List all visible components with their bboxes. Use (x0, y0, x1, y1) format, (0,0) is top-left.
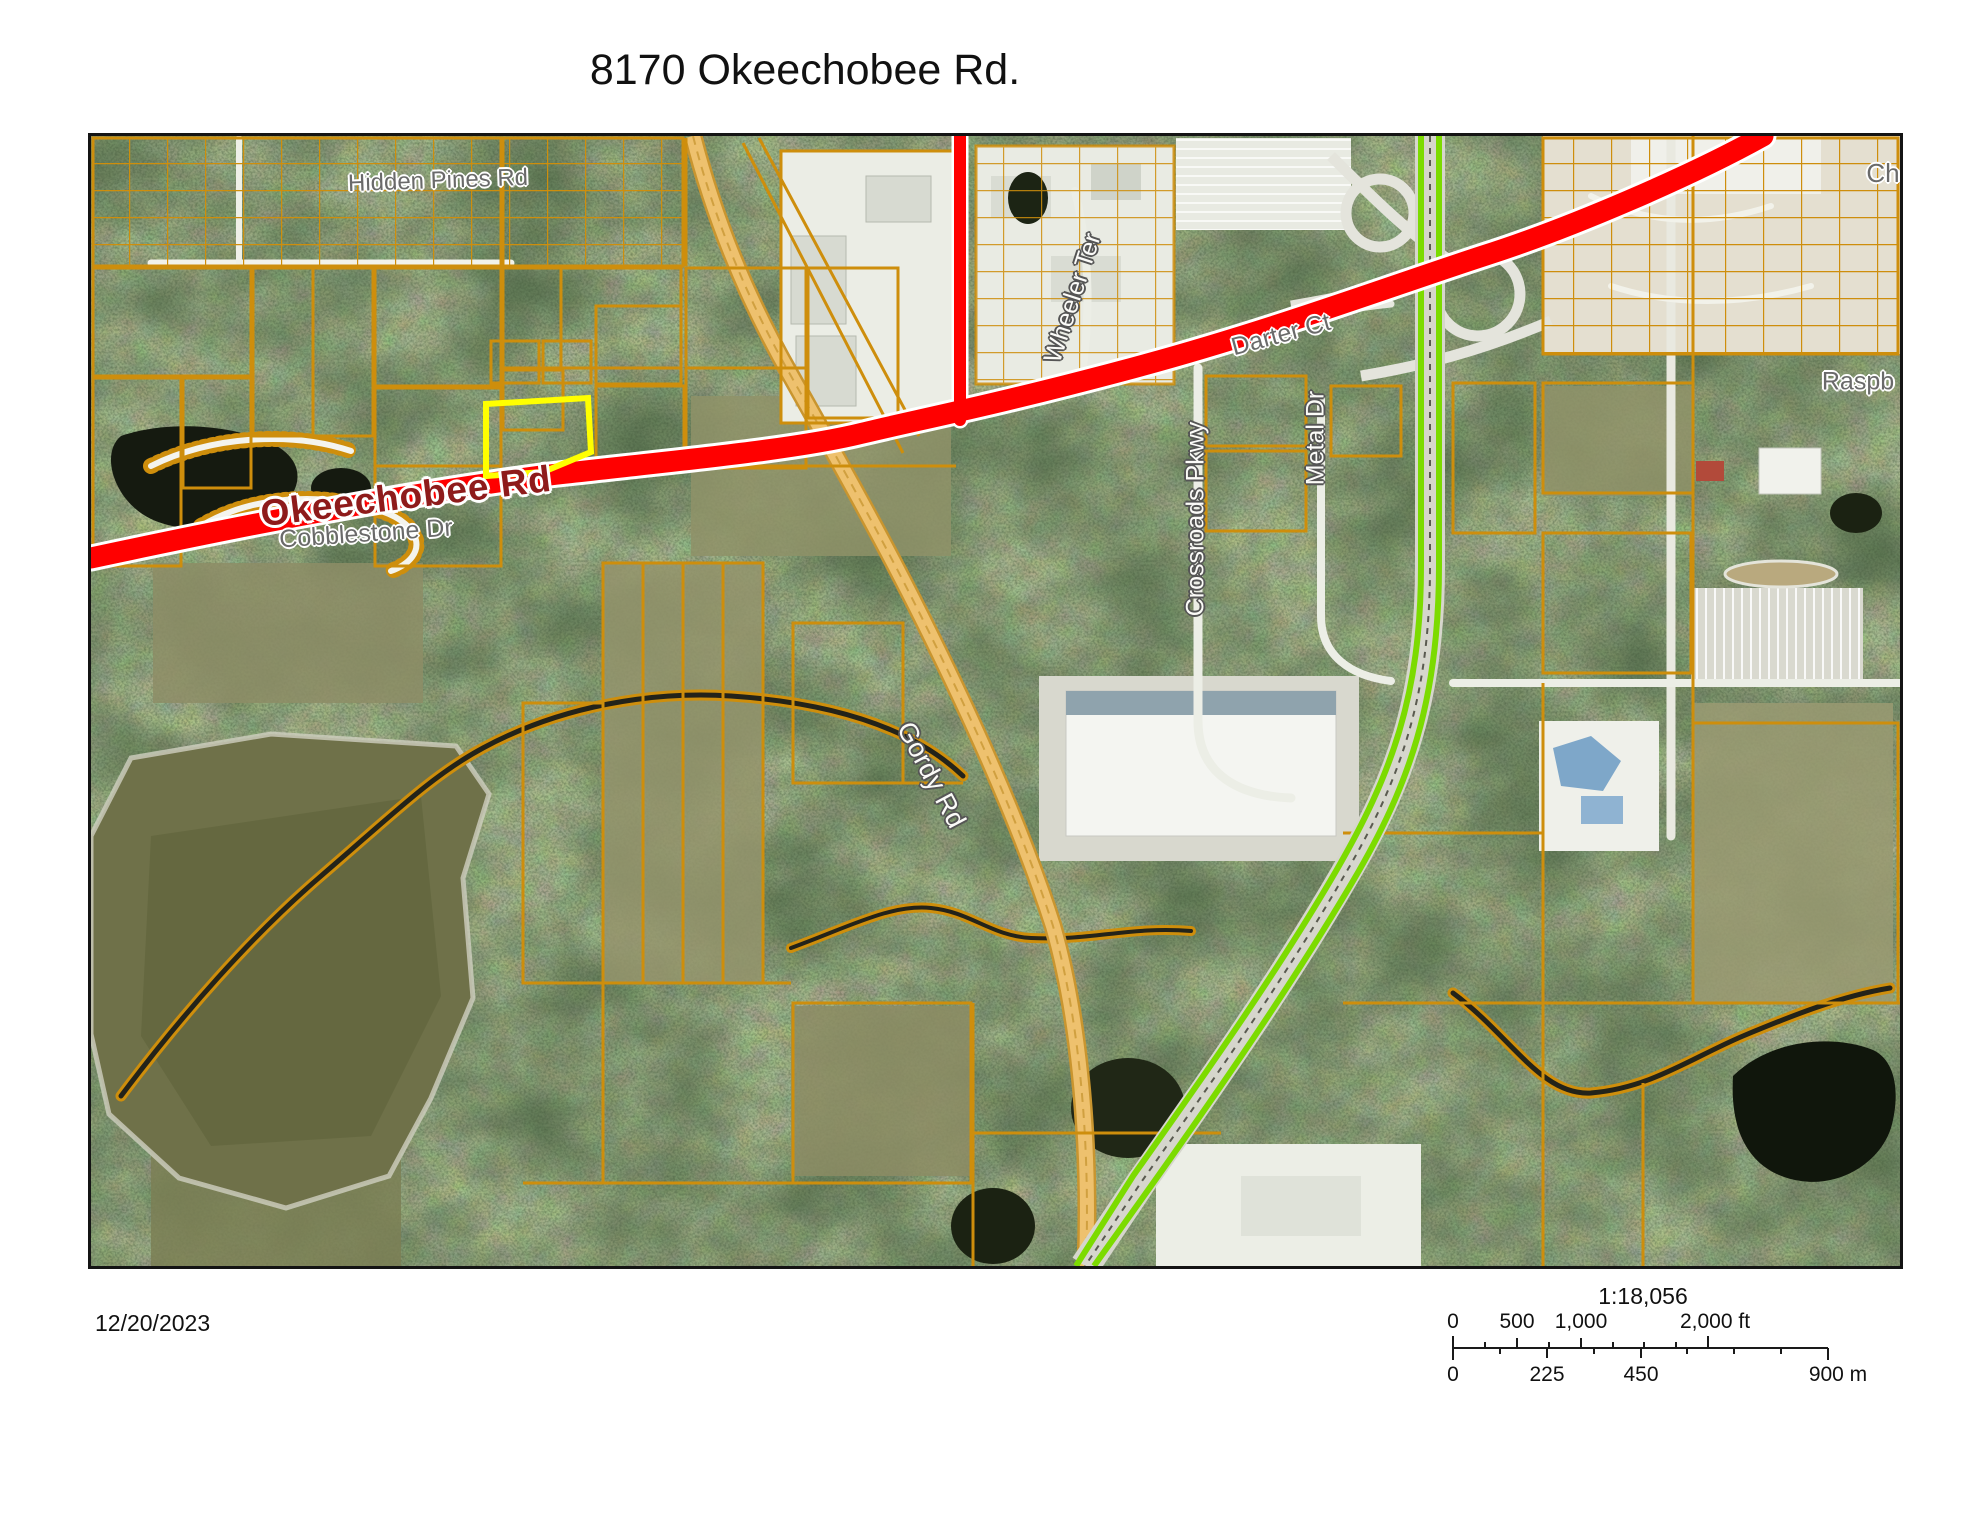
map-date: 12/20/2023 (95, 1310, 210, 1337)
road-label-hidden-pines: Hidden Pines Rd (348, 166, 529, 196)
road-label-raspberry: Raspb (1822, 370, 1894, 395)
road-label-ch: Ch (1866, 160, 1899, 186)
scale-ft-label-1000: 1,000 (1555, 1310, 1608, 1334)
scale-m-label-450: 450 (1623, 1363, 1658, 1387)
scale-m-label-900: 900 m (1809, 1363, 1867, 1387)
scale-ratio: 1:18,056 (1598, 1283, 1688, 1310)
scale-bar: 1:18,056 0 500 1,000 2,000 ft (1440, 1283, 1900, 1398)
map-canvas (91, 136, 1900, 1266)
scale-ft-label-0: 0 (1447, 1310, 1459, 1334)
scale-m-label-0: 0 (1447, 1363, 1459, 1387)
scale-bar-ruler (1440, 1335, 1880, 1361)
road-label-crossroads: Crossroads Pkwy (1184, 422, 1209, 617)
map-document-page: { "title": "8170 Okeechobee Rd.", "map":… (0, 0, 1987, 1535)
scale-ft-label-500: 500 (1499, 1310, 1534, 1334)
map-viewport: Hidden Pines Rd Okeechobee Rd Cobbleston… (88, 133, 1903, 1269)
scale-ft-label-2000: 2,000 ft (1680, 1310, 1750, 1334)
scale-m-label-225: 225 (1529, 1363, 1564, 1387)
road-label-metal: Metal Dr (1304, 391, 1329, 485)
page-title: 8170 Okeechobee Rd. (590, 46, 1020, 95)
